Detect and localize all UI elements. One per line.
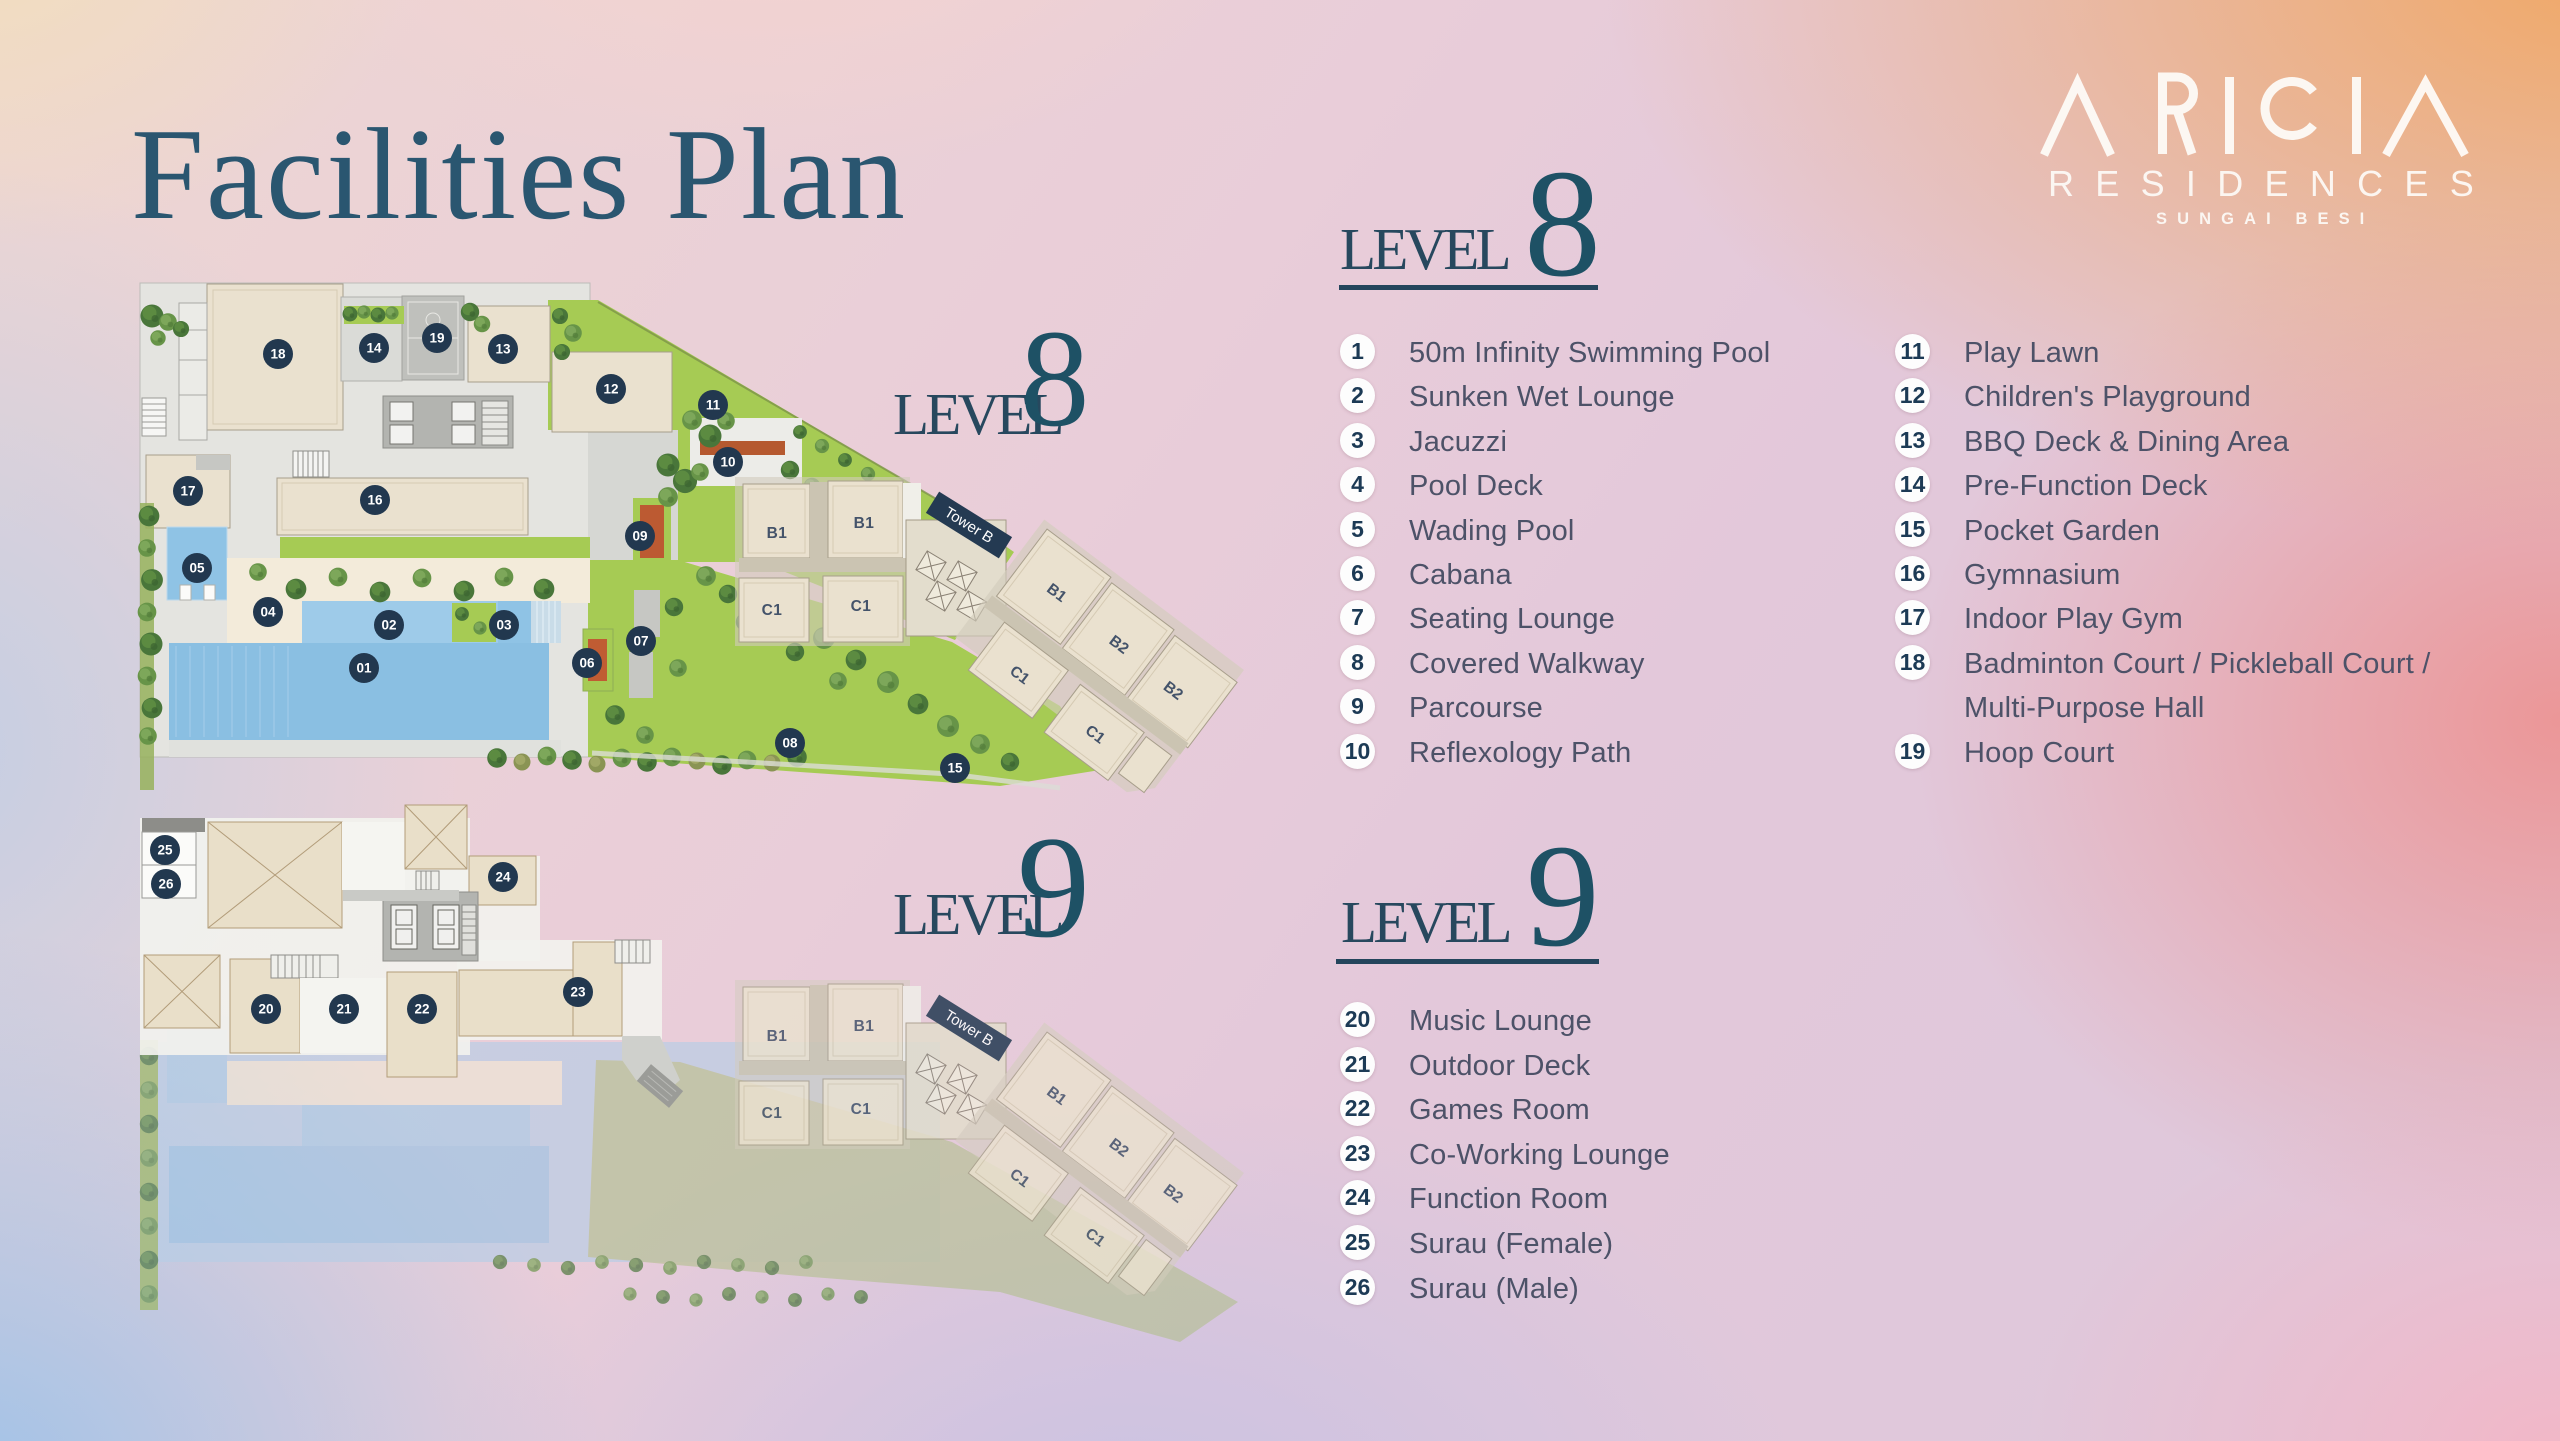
svg-text:07: 07 (633, 634, 648, 649)
svg-text:08: 08 (782, 736, 798, 751)
svg-text:17: 17 (180, 484, 195, 499)
svg-text:24: 24 (495, 870, 511, 885)
svg-text:14: 14 (366, 341, 382, 356)
svg-text:20: 20 (258, 1002, 273, 1017)
svg-text:19: 19 (429, 331, 444, 346)
svg-text:C1: C1 (762, 1105, 783, 1122)
svg-text:13: 13 (495, 342, 511, 357)
svg-text:B1: B1 (767, 1028, 788, 1045)
svg-text:10: 10 (720, 455, 735, 470)
svg-text:22: 22 (414, 1002, 429, 1017)
svg-text:B1: B1 (854, 515, 875, 532)
svg-text:06: 06 (579, 656, 595, 671)
svg-text:18: 18 (270, 347, 286, 362)
svg-text:16: 16 (367, 493, 383, 508)
svg-text:21: 21 (336, 1002, 352, 1017)
svg-text:26: 26 (158, 877, 174, 892)
svg-text:C1: C1 (851, 1101, 872, 1118)
svg-text:C1: C1 (762, 602, 783, 619)
svg-text:B1: B1 (767, 525, 788, 542)
svg-text:23: 23 (570, 985, 586, 1000)
svg-text:15: 15 (947, 761, 963, 776)
svg-text:05: 05 (189, 561, 205, 576)
svg-text:01: 01 (356, 661, 372, 676)
svg-text:03: 03 (496, 618, 512, 633)
svg-text:09: 09 (632, 529, 647, 544)
svg-text:C1: C1 (851, 598, 872, 615)
svg-text:02: 02 (381, 618, 396, 633)
svg-text:B1: B1 (854, 1018, 875, 1035)
svg-text:04: 04 (260, 605, 276, 620)
svg-text:12: 12 (603, 382, 618, 397)
svg-text:25: 25 (157, 843, 173, 858)
svg-text:11: 11 (706, 398, 721, 413)
